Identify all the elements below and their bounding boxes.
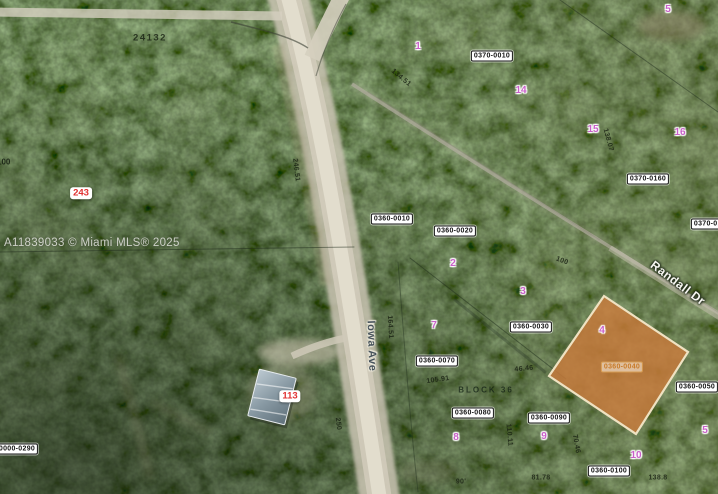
lot-number-label: 3: [520, 287, 526, 297]
parcel-id-label: 0360-0010: [371, 214, 413, 225]
plat-number-label: 24132: [133, 33, 167, 44]
parcel-id-label: 0370-0160: [627, 174, 669, 185]
parcel-id-label: 0360-0040: [601, 362, 643, 373]
parcel-id-label: 0360-0050: [676, 382, 718, 393]
dimension-label: 100: [555, 256, 569, 267]
lot-number-label: 9: [541, 432, 547, 442]
dimension-label: 246.51: [291, 158, 301, 182]
street-name-label: Randall Dr: [648, 259, 707, 308]
dimension-label: 46.46: [514, 365, 534, 374]
dimension-label: 81.78: [531, 475, 550, 482]
lot-number-label: 5: [665, 5, 671, 15]
mls-watermark: A11839033 © Miami MLS® 2025: [4, 237, 180, 249]
parcel-id-label: 0360-0090: [528, 413, 570, 424]
parcel-id-label: 0360-0070: [416, 356, 458, 367]
lot-number-label: 14: [515, 86, 526, 96]
lot-number-label: 16: [674, 128, 685, 138]
address-marker-label: 243: [70, 187, 92, 199]
lot-number-label: 8: [453, 433, 459, 443]
edge-dimension-label: 100: [0, 158, 10, 167]
parcel-id-label: 0360-0020: [434, 226, 476, 237]
dimension-label: 138.8: [648, 475, 667, 482]
dimension-label: 138.07: [602, 128, 615, 152]
block-label: BLOCK 36: [458, 386, 514, 395]
aerial-map[interactable]: 246.51134.51138.07100164.51250105.9146.4…: [0, 0, 718, 494]
parcel-id-label: 0360-0100: [588, 466, 630, 477]
dimension-label: 70.46: [571, 434, 581, 454]
lot-number-label: 7: [431, 321, 437, 331]
lot-number-label: 15: [587, 125, 598, 135]
dimension-label: 110.11: [505, 424, 514, 447]
dimension-label: 134.51: [390, 68, 412, 88]
lot-number-label: 4: [599, 326, 605, 336]
dimension-label: 250: [334, 417, 342, 430]
dimension-label: 164.51: [386, 315, 394, 339]
parcel-id-label: 0370-0170: [691, 219, 718, 230]
parcel-id-label: 0360-0030: [510, 322, 552, 333]
parcel-id-label: 0000-0290: [0, 444, 38, 455]
lot-number-label: 10: [630, 451, 641, 461]
parcel-id-label: 0370-0010: [471, 51, 513, 62]
lot-number-label: 1: [415, 42, 421, 52]
lot-number-label: 2: [450, 259, 456, 269]
parcel-id-label: 0360-0080: [452, 408, 494, 419]
dimension-label: 105.91: [426, 375, 450, 385]
lot-number-label: 5: [702, 426, 708, 436]
street-name-label: Iowa Ave: [365, 320, 378, 371]
address-marker-label: 113: [279, 390, 300, 402]
dimension-label: 90': [456, 479, 466, 486]
